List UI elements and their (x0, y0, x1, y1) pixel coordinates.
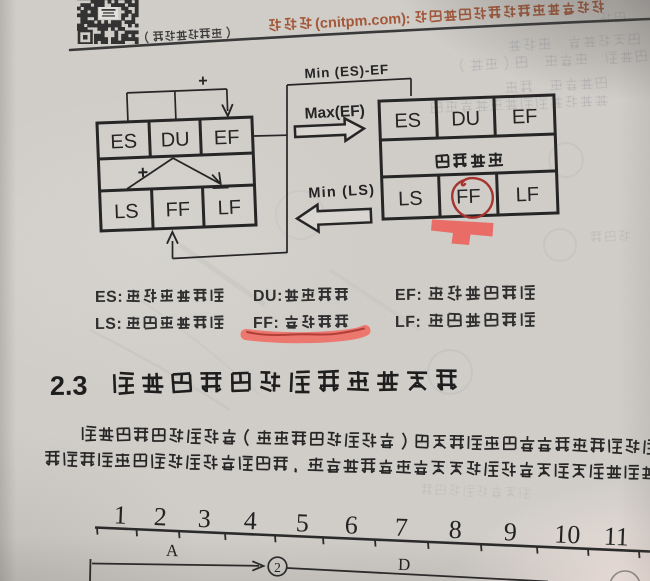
svg-text:EF: EF (213, 127, 239, 150)
svg-text:LS: LS (114, 200, 139, 223)
svg-text:FF: FF (165, 199, 190, 222)
svg-text:2.3: 2.3 (50, 371, 88, 401)
svg-text:6: 6 (344, 510, 358, 540)
svg-text:LF: LF (217, 197, 241, 220)
svg-text:LS: LS (398, 188, 423, 211)
svg-text:3: 3 (197, 504, 211, 534)
svg-text:2: 2 (274, 560, 281, 575)
svg-text:8: 8 (448, 515, 462, 545)
svg-text:EF: EF (511, 106, 537, 129)
svg-text:+: + (137, 162, 148, 182)
svg-text:11: 11 (603, 522, 629, 552)
svg-text:7: 7 (394, 512, 408, 542)
svg-text:ES: ES (110, 130, 138, 153)
svg-text:ES: ES (394, 110, 421, 133)
svg-text:LF: LF (515, 184, 539, 207)
svg-text:Max(EF): Max(EF) (304, 102, 365, 122)
svg-text:DU:: DU: (253, 288, 283, 305)
svg-text:EF:: EF: (395, 287, 422, 304)
svg-text:FF:: FF: (253, 315, 279, 332)
svg-text:DU: DU (451, 108, 481, 131)
svg-text:1: 1 (113, 500, 127, 530)
svg-text:LF:: LF: (395, 314, 421, 331)
svg-text:4: 4 (243, 506, 257, 536)
svg-text:D: D (398, 555, 411, 574)
svg-text:FF: FF (456, 186, 481, 209)
svg-text:10: 10 (554, 519, 581, 549)
svg-text:ES:: ES: (95, 289, 123, 306)
svg-text:+: + (198, 73, 208, 90)
svg-text:LS:: LS: (95, 316, 122, 333)
svg-text:A: A (166, 541, 179, 560)
svg-text:9: 9 (503, 517, 517, 547)
svg-text:DU: DU (160, 128, 190, 151)
svg-text:2: 2 (153, 502, 167, 532)
svg-text:5: 5 (295, 508, 309, 538)
